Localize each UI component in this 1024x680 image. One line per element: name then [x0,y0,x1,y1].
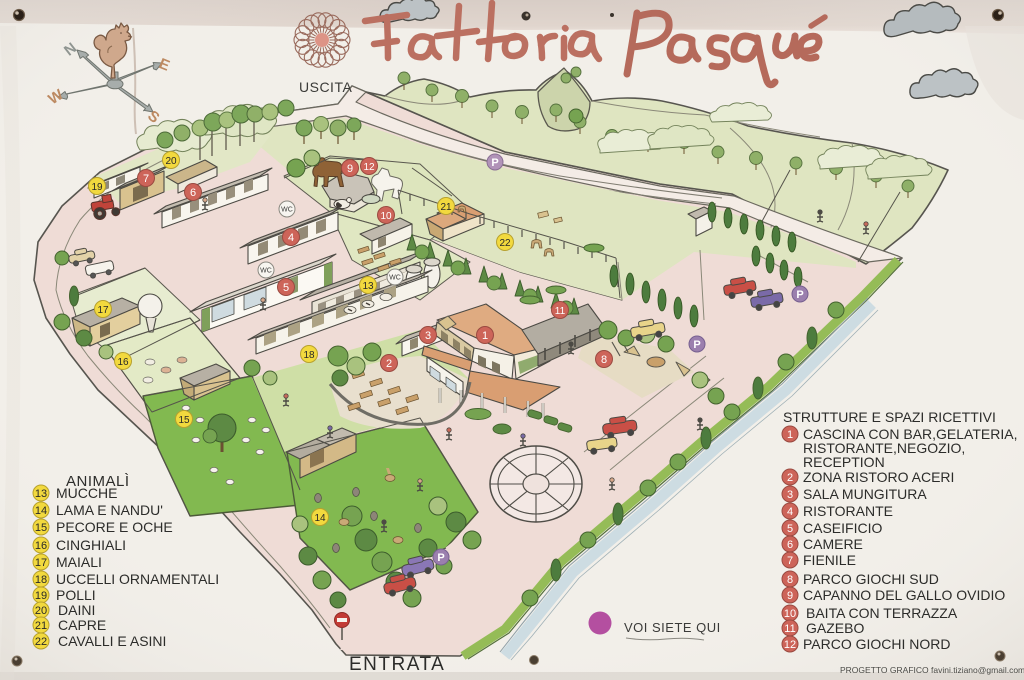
svg-text:UCCELLI ORNAMENTALI: UCCELLI ORNAMENTALI [56,571,219,587]
svg-text:PARCO GIOCHI SUD: PARCO GIOCHI SUD [803,571,939,587]
svg-text:6: 6 [190,187,196,199]
svg-text:CASEIFICIO: CASEIFICIO [803,520,882,536]
svg-text:14: 14 [35,505,47,517]
svg-text:9: 9 [347,163,353,175]
svg-text:CINGHIALI: CINGHIALI [56,537,126,553]
svg-text:WC: WC [260,268,272,275]
svg-text:14: 14 [314,513,326,524]
svg-text:2: 2 [787,472,793,484]
svg-text:LAMA E NANDU': LAMA E NANDU' [56,502,163,518]
svg-text:SALA MUNGITURA: SALA MUNGITURA [803,486,927,502]
svg-text:POLLI: POLLI [56,587,96,603]
svg-text:VOI SIETE QUI: VOI SIETE QUI [624,620,721,635]
svg-text:11: 11 [784,623,795,635]
svg-text:8: 8 [787,574,793,586]
svg-text:21: 21 [440,202,452,213]
svg-text:5: 5 [283,282,289,294]
svg-text:17: 17 [97,305,109,316]
svg-text:6: 6 [787,539,793,551]
svg-text:ZONA RISTORO ACERI: ZONA RISTORO ACERI [803,469,954,485]
svg-text:RECEPTION: RECEPTION [803,454,885,470]
svg-text:BAITA CON TERRAZZA: BAITA CON TERRAZZA [806,605,958,621]
svg-text:15: 15 [178,415,190,426]
svg-text:1: 1 [482,330,488,342]
svg-text:16: 16 [35,540,47,552]
svg-text:12: 12 [363,162,375,173]
svg-text:MAIALI: MAIALI [56,554,102,570]
svg-text:21: 21 [35,620,47,632]
svg-text:GAZEBO: GAZEBO [806,620,864,636]
svg-text:DAINI: DAINI [58,602,95,618]
svg-text:P: P [437,552,444,564]
svg-text:1: 1 [787,429,793,441]
svg-text:CAVALLI E ASINI: CAVALLI E ASINI [58,633,166,649]
svg-text:13: 13 [35,488,47,500]
svg-text:15: 15 [35,522,47,534]
svg-text:22: 22 [35,636,47,648]
svg-text:18: 18 [303,350,315,361]
svg-text:3: 3 [425,330,431,342]
svg-text:4: 4 [787,506,793,518]
svg-text:10: 10 [380,211,392,222]
svg-text:CAMERE: CAMERE [803,536,863,552]
svg-text:19: 19 [91,182,103,193]
svg-text:PECORE E OCHE: PECORE E OCHE [56,519,173,535]
svg-text:20: 20 [35,605,47,617]
svg-text:4: 4 [288,232,294,244]
svg-text:MUCCHE: MUCCHE [56,485,117,501]
svg-text:RISTORANTE: RISTORANTE [803,503,893,519]
svg-text:FIENILE: FIENILE [803,552,856,568]
svg-text:8: 8 [601,354,607,366]
svg-text:PROGETTO GRAFICO favini.tizian: PROGETTO GRAFICO favini.tiziano@gmail.co… [840,665,1024,675]
svg-text:USCITA: USCITA [299,79,352,95]
svg-text:3: 3 [787,489,793,501]
svg-text:11: 11 [555,306,566,317]
svg-text:P: P [491,157,498,169]
svg-text:19: 19 [35,590,47,602]
svg-text:12: 12 [784,639,796,651]
svg-text:ENTRATA: ENTRATA [349,654,445,675]
svg-text:7: 7 [787,555,793,567]
svg-text:CAPRE: CAPRE [58,617,106,633]
svg-text:13: 13 [362,281,374,292]
svg-text:CAPANNO DEL GALLO OVIDIO: CAPANNO DEL GALLO OVIDIO [803,587,1005,603]
svg-text:2: 2 [386,358,392,370]
svg-text:5: 5 [787,523,793,535]
svg-text:STRUTTURE E SPAZI RICETTIVI: STRUTTURE E SPAZI RICETTIVI [783,409,996,425]
svg-text:16: 16 [117,357,129,368]
svg-text:WC: WC [389,275,401,282]
svg-text:10: 10 [784,608,796,620]
svg-text:WC: WC [281,207,293,214]
svg-text:9: 9 [787,590,793,602]
svg-text:7: 7 [143,173,149,185]
svg-text:22: 22 [499,238,511,249]
svg-text:P: P [796,289,803,301]
svg-text:20: 20 [165,156,177,167]
svg-text:P: P [693,339,700,351]
svg-text:17: 17 [35,557,47,569]
svg-text:18: 18 [35,574,47,586]
svg-text:PARCO GIOCHI NORD: PARCO GIOCHI NORD [803,636,951,652]
